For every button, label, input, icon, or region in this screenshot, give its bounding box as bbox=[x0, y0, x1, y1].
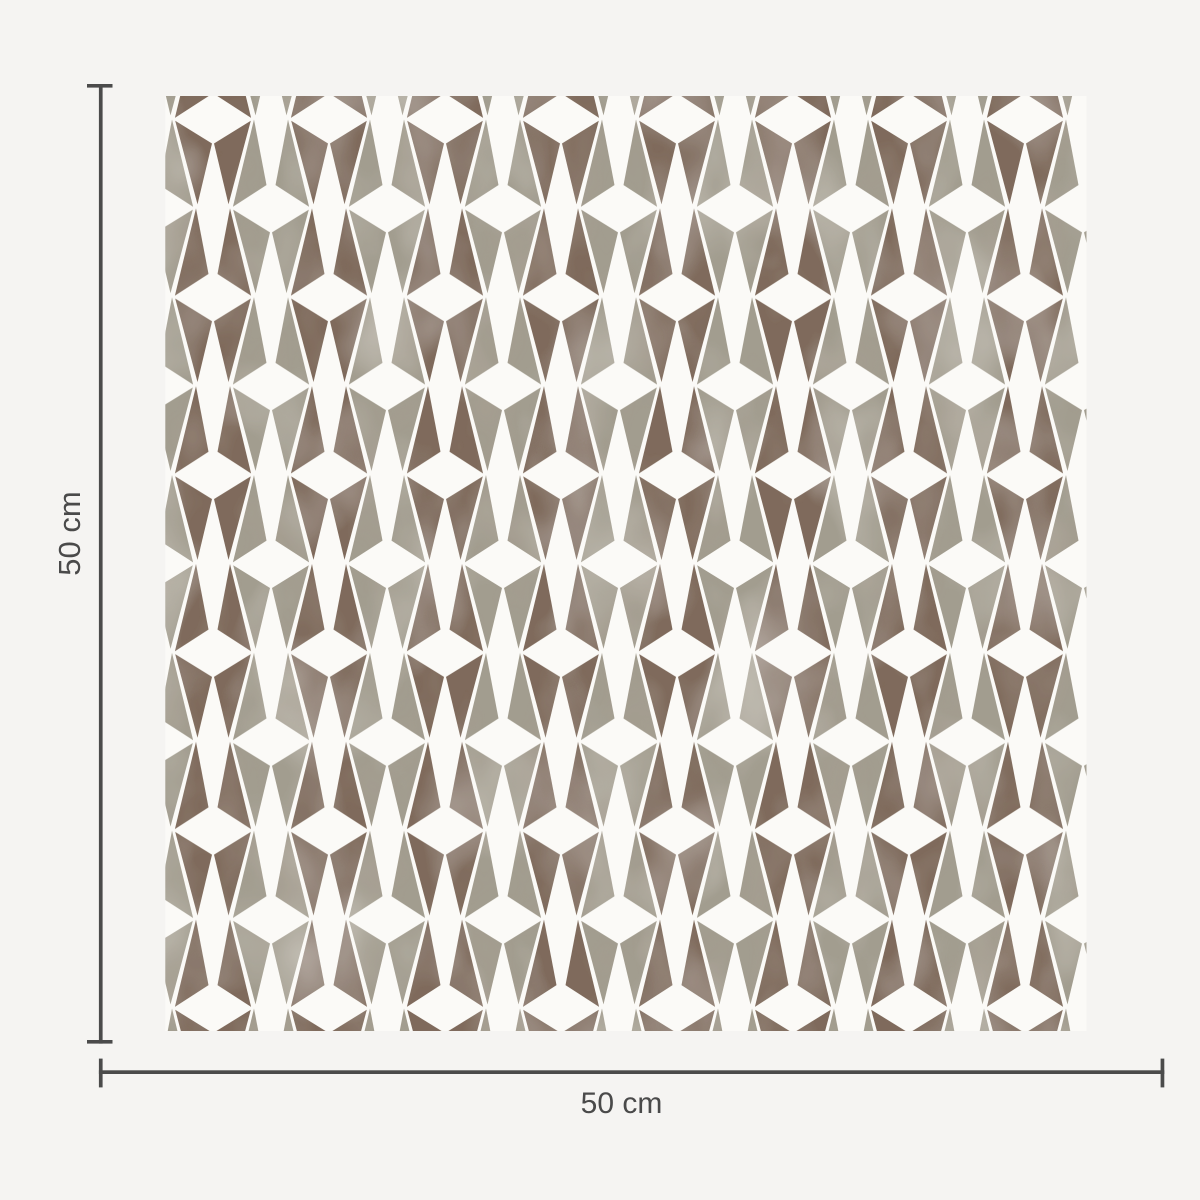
svg-text:50 cm: 50 cm bbox=[581, 1087, 663, 1120]
svg-text:50 cm: 50 cm bbox=[52, 491, 87, 575]
